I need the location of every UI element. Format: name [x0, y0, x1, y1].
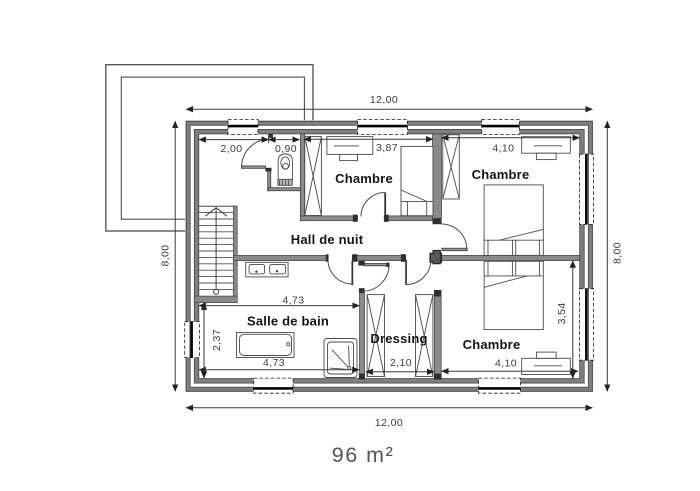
svg-text:8,00: 8,00 — [160, 244, 172, 266]
svg-text:4,73: 4,73 — [263, 357, 285, 369]
svg-text:3,54: 3,54 — [556, 302, 568, 324]
svg-text:2,10: 2,10 — [390, 357, 412, 369]
svg-text:Salle de bain: Salle de bain — [247, 313, 329, 328]
svg-text:8,00: 8,00 — [612, 242, 624, 264]
svg-text:Chambre: Chambre — [472, 167, 530, 182]
svg-text:Chambre: Chambre — [335, 171, 393, 186]
svg-text:4,73: 4,73 — [282, 295, 304, 307]
svg-text:2,00: 2,00 — [220, 143, 242, 155]
svg-text:12,00: 12,00 — [375, 417, 403, 429]
svg-text:2,37: 2,37 — [211, 329, 223, 351]
svg-text:3,87: 3,87 — [376, 142, 398, 154]
svg-text:0,90: 0,90 — [275, 143, 297, 155]
svg-text:96 m²: 96 m² — [332, 443, 394, 467]
svg-text:Hall de nuit: Hall de nuit — [291, 232, 364, 247]
svg-text:Dressing: Dressing — [370, 331, 427, 346]
svg-text:Chambre: Chambre — [463, 337, 521, 352]
svg-text:4,10: 4,10 — [492, 142, 514, 154]
svg-text:12,00: 12,00 — [370, 94, 398, 106]
svg-text:4,10: 4,10 — [495, 358, 517, 370]
